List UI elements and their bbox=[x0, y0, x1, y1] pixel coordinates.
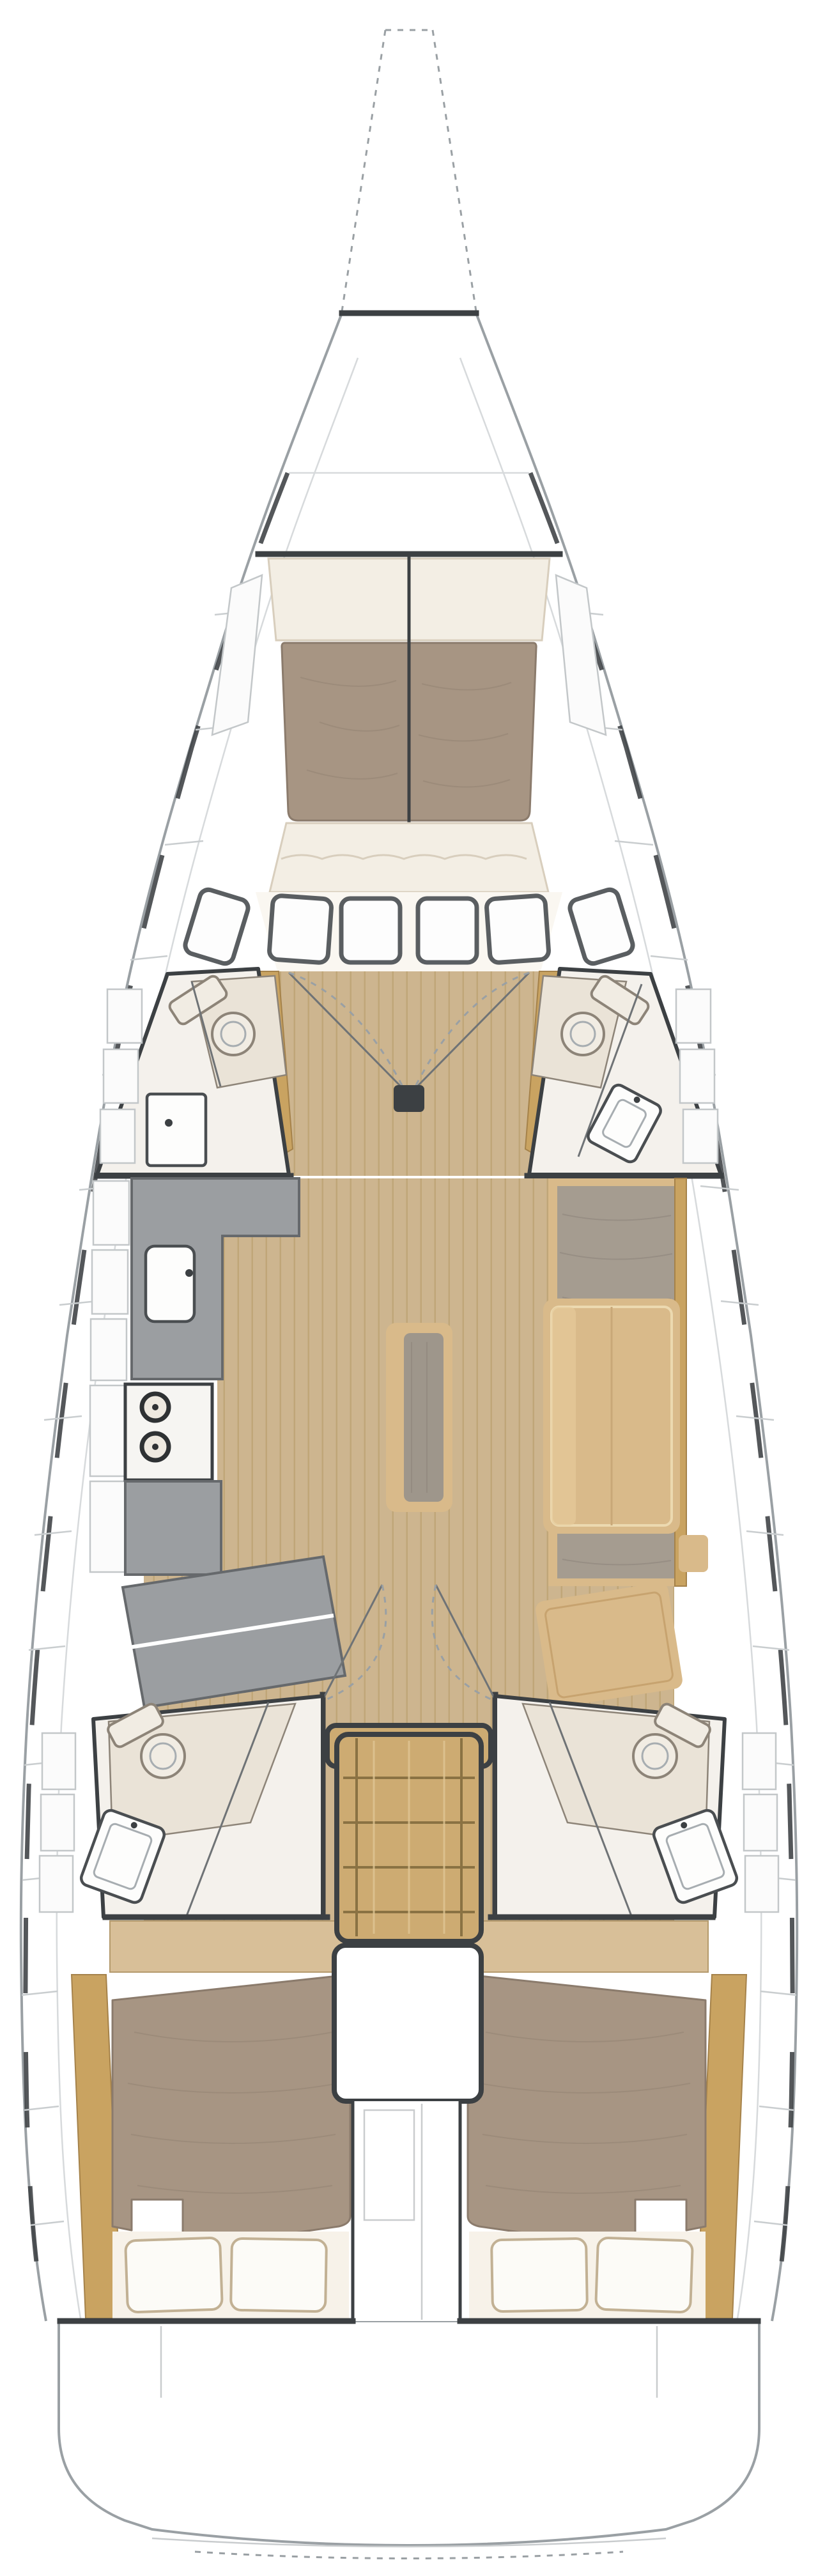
galley-sink bbox=[146, 1246, 194, 1322]
floor-plan-canvas bbox=[0, 0, 818, 2576]
locker bbox=[40, 1856, 73, 1912]
locker bbox=[683, 1109, 718, 1163]
forward-corridor bbox=[257, 971, 561, 1176]
yacht-floor-plan-page bbox=[0, 0, 818, 2576]
walkway-floor bbox=[353, 2101, 460, 2321]
stove bbox=[125, 1384, 212, 1480]
locker bbox=[745, 1856, 778, 1912]
locker bbox=[104, 1049, 138, 1103]
stb-head-lockers bbox=[676, 989, 718, 1163]
port-aft-mattress bbox=[112, 1975, 350, 2233]
transom-swim-platform bbox=[59, 2321, 759, 2559]
mast-step bbox=[394, 1085, 424, 1112]
locker bbox=[42, 1733, 75, 1789]
locker bbox=[107, 989, 142, 1043]
locker bbox=[92, 1250, 128, 1314]
table-highlight bbox=[552, 1307, 576, 1525]
port-headboard-shelf bbox=[110, 1921, 350, 1972]
port-head-lockers bbox=[100, 989, 142, 1163]
hatch-stb-center bbox=[418, 899, 477, 962]
locker bbox=[100, 1109, 135, 1163]
port-cabinet-handle bbox=[165, 1119, 173, 1127]
pillow bbox=[491, 2239, 587, 2312]
corridor-floor bbox=[257, 971, 561, 1176]
side-shelf bbox=[679, 1535, 708, 1572]
engine-compartment bbox=[334, 1945, 481, 2101]
locker bbox=[91, 1319, 127, 1380]
port-aft-lockers bbox=[40, 1733, 75, 1912]
chart-table bbox=[534, 1582, 684, 1709]
port-aft-toilet-bowl bbox=[141, 1734, 185, 1778]
bench-cushion bbox=[404, 1333, 444, 1502]
burner-center bbox=[152, 1404, 158, 1410]
locker bbox=[744, 1794, 777, 1851]
dining-table bbox=[543, 1299, 680, 1534]
starboard-forward-head bbox=[529, 969, 721, 1175]
hatch-port-mid bbox=[269, 895, 332, 963]
hatch-port-center bbox=[341, 899, 400, 962]
galley-lockers bbox=[90, 1181, 129, 1572]
stb-toilet-bowl bbox=[562, 1013, 604, 1055]
port-forward-head bbox=[97, 969, 289, 1175]
hatch-stb-mid bbox=[486, 895, 550, 963]
bow-dash-stb bbox=[433, 30, 476, 311]
locker bbox=[41, 1794, 74, 1851]
port-toilet-bowl bbox=[212, 1013, 254, 1055]
locker bbox=[90, 1385, 126, 1476]
pillow bbox=[596, 2237, 693, 2312]
center-bench bbox=[386, 1323, 452, 1512]
galley-faucet bbox=[185, 1269, 193, 1277]
stb-aft-mattress bbox=[468, 1975, 706, 2233]
bow-pulpit bbox=[342, 30, 476, 311]
port-head-cabinet bbox=[147, 1094, 206, 1166]
galley-lower-counter bbox=[125, 1481, 221, 1575]
pillow bbox=[125, 2237, 222, 2312]
locker bbox=[676, 989, 711, 1043]
locker bbox=[93, 1181, 129, 1245]
stb-aft-lockers bbox=[743, 1733, 778, 1912]
pillow bbox=[231, 2239, 327, 2312]
burner-center bbox=[152, 1444, 158, 1450]
stb-headboard-shelf bbox=[468, 1921, 708, 1972]
platform-dotted-edge bbox=[195, 2552, 623, 2559]
locker bbox=[90, 1481, 126, 1572]
stb-aft-toilet-bowl bbox=[633, 1734, 677, 1778]
locker bbox=[680, 1049, 714, 1103]
locker bbox=[743, 1733, 776, 1789]
center-walkway bbox=[353, 2101, 460, 2321]
platform-outline bbox=[59, 2321, 759, 2545]
bow-dash-port bbox=[342, 30, 385, 311]
